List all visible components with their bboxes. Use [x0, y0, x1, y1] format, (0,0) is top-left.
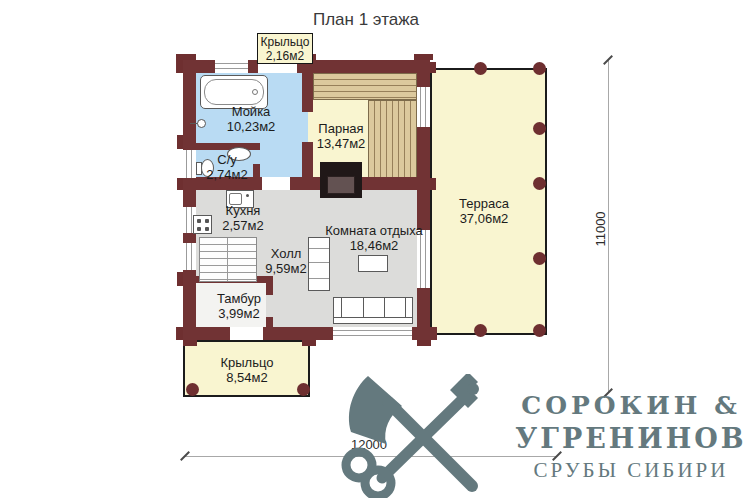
sofa-cushion-line: [384, 298, 385, 317]
room-label-wc: С/у 2,74м2: [206, 152, 247, 182]
room-name: Крыльцо: [220, 355, 273, 370]
page-title: План 1 этажа: [313, 10, 419, 30]
room-area: 8,54м2: [220, 370, 273, 385]
terrace-post: [533, 177, 546, 190]
wall-segment: [302, 60, 313, 112]
logo-wordmark: СОРОКИН & УГРЕНИНОВ СРУБЫ СИБИРИ: [515, 390, 747, 484]
window: [417, 87, 430, 127]
room-area: 13,47м2: [317, 136, 366, 151]
window: [215, 60, 248, 73]
wall-segment: [253, 164, 260, 177]
staircase: [199, 237, 257, 282]
room-area: 2,74м2: [206, 167, 247, 182]
porch-post: [186, 383, 199, 396]
room-label-vestibule: Тамбур 3,99м2: [217, 291, 261, 321]
room-label-washroom: Мойка 10,23м2: [227, 104, 276, 134]
sofa-armrest-line: [341, 298, 342, 317]
sauna-bench-right: [368, 100, 417, 180]
log-end: [417, 340, 431, 346]
door-opening: [230, 327, 263, 340]
dimension-line-right: [608, 60, 609, 393]
room-label-steam-room: Парная 13,47м2: [317, 121, 366, 151]
room-name: Кухня: [222, 203, 263, 218]
window: [333, 327, 412, 340]
log-end: [177, 272, 183, 286]
terrace-post: [533, 62, 546, 75]
window: [183, 150, 196, 178]
wall-segment: [183, 60, 196, 340]
staircase-divider: [227, 238, 228, 281]
log-end: [414, 54, 433, 60]
sofa-armrest-line: [405, 298, 406, 317]
wall-segment: [190, 143, 260, 150]
shower-head-icon: [197, 119, 206, 128]
room-name: Крыльцо: [258, 35, 312, 49]
dimension-value-height: 11000: [593, 211, 608, 246]
terrace-post: [533, 252, 546, 265]
room-label-porch-bottom: Крыльцо 8,54м2: [220, 355, 273, 385]
log-end: [177, 60, 183, 73]
room-area: 3,99м2: [217, 306, 261, 321]
floor-plan-page: План 1 этажа: [0, 0, 753, 502]
room-label-rest-room: Комната отдыха 18,46м2: [325, 223, 423, 253]
room-name: Комната отдыха: [325, 223, 423, 238]
room-area: 9,59м2: [265, 261, 306, 276]
kitchen-faucet: [246, 194, 249, 197]
log-end: [177, 135, 183, 149]
room-area: 18,46м2: [325, 238, 423, 253]
cooktop: [193, 215, 212, 234]
room-label-kitchen: Кухня 2,57м2: [222, 203, 263, 233]
logo-name-line1: СОРОКИН &: [515, 390, 747, 421]
room-area: 2,57м2: [222, 218, 263, 233]
room-label-hall: Холл 9,59м2: [265, 246, 306, 276]
log-end: [183, 340, 197, 346]
sofa: [333, 297, 413, 324]
logo-axe-and-key-icon: [338, 374, 506, 498]
porch-post: [297, 383, 310, 396]
room-name: Мойка: [227, 104, 276, 119]
wall-segment: [266, 283, 273, 295]
wall-segment: [302, 142, 313, 177]
wall-segment: [266, 317, 273, 327]
sofa-cushion-line: [363, 298, 364, 317]
room-name: С/у: [206, 152, 247, 167]
log-end: [177, 178, 183, 190]
room-name: Холл: [265, 246, 306, 261]
room-name: Тамбур: [217, 291, 261, 306]
log-end: [430, 62, 436, 73]
terrace-post: [474, 324, 487, 337]
door-opening: [262, 177, 290, 190]
room-name: Терраса: [459, 196, 509, 211]
window: [183, 243, 196, 270]
log-end: [302, 340, 316, 346]
room-area: 37,06м2: [459, 211, 509, 226]
sauna-stove-door: [327, 176, 355, 194]
sofa-back-line: [334, 317, 412, 318]
room-area: 10,23м2: [227, 119, 276, 134]
terrace-post: [474, 62, 487, 75]
log-end: [430, 178, 436, 190]
room-name: Парная: [317, 121, 366, 136]
coffee-table: [358, 255, 388, 272]
logo-tagline: СРУБЫ СИБИРИ: [515, 456, 747, 484]
log-end: [177, 327, 183, 340]
sauna-bench-top: [313, 73, 417, 100]
logo-name-line2: УГРЕНИНОВ: [515, 421, 747, 456]
bathtub-drain: [252, 89, 258, 95]
terrace-post: [533, 324, 546, 337]
room-area: 2,16м2: [258, 49, 312, 63]
room-label-terrace: Терраса 37,06м2: [459, 196, 509, 226]
room-label-porch-top: Крыльцо 2,16м2: [257, 33, 313, 64]
terrace-post: [533, 122, 546, 135]
